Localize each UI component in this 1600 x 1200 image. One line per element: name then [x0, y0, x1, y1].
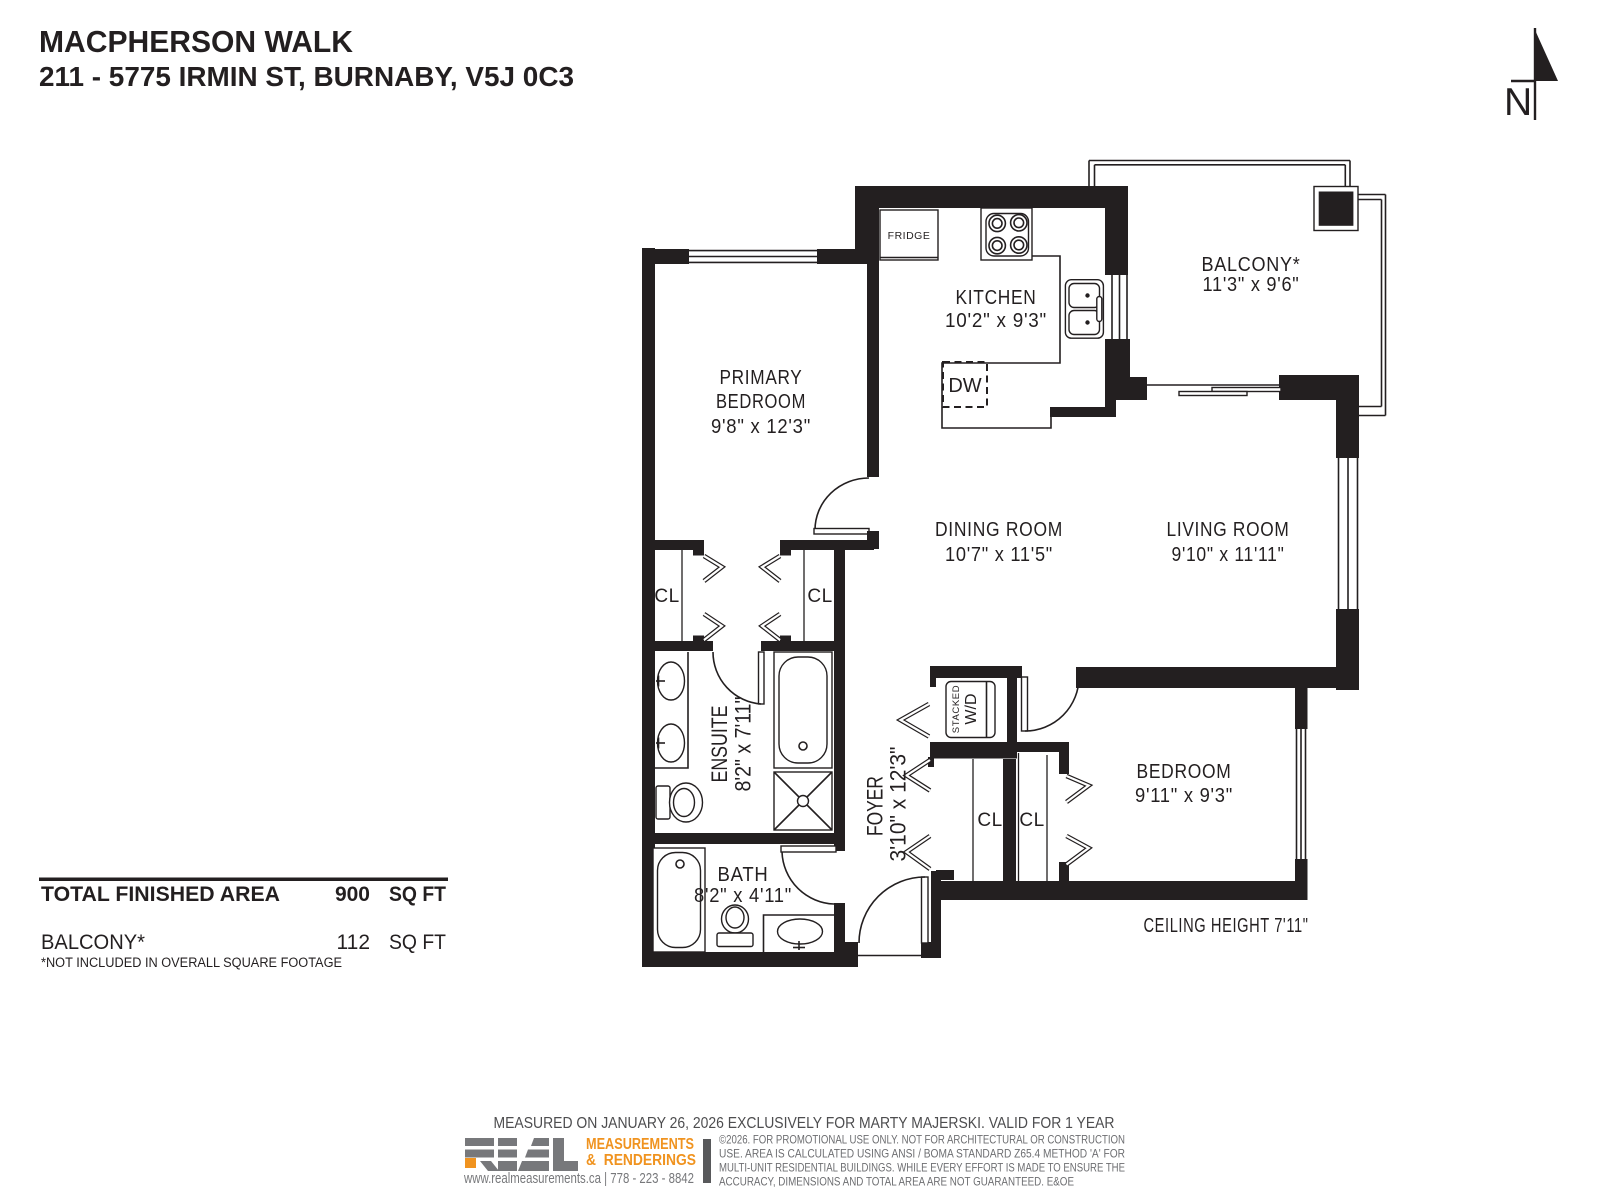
- svg-text:900: 900: [335, 883, 370, 906]
- svg-text:*NOT INCLUDED IN OVERALL SQUAR: *NOT INCLUDED IN OVERALL SQUARE FOOTAGE: [41, 955, 342, 970]
- svg-text:FOYER: FOYER: [863, 776, 888, 836]
- svg-text:ACCURACY, DIMENSIONS AND TOTAL: ACCURACY, DIMENSIONS AND TOTAL AREA ARE …: [719, 1175, 1074, 1189]
- svg-text:DW: DW: [948, 375, 981, 397]
- svg-text:MACPHERSON WALK: MACPHERSON WALK: [39, 24, 354, 59]
- svg-text:BALCONY*: BALCONY*: [41, 931, 145, 954]
- svg-text:USE. AREA IS CALCULATED USING: USE. AREA IS CALCULATED USING ANSI / BOM…: [719, 1147, 1125, 1161]
- svg-text:CL: CL: [1019, 810, 1044, 831]
- svg-text:8'2" x 4'11": 8'2" x 4'11": [694, 885, 792, 907]
- svg-text:& RENDERINGS: & RENDERINGS: [586, 1152, 696, 1169]
- svg-text:STACKED: STACKED: [951, 685, 962, 733]
- svg-text:DINING ROOM: DINING ROOM: [935, 519, 1063, 541]
- svg-text:CL: CL: [977, 810, 1002, 831]
- svg-text:MEASUREMENTS: MEASUREMENTS: [586, 1136, 694, 1153]
- svg-text:CL: CL: [654, 586, 679, 607]
- svg-text:9'10" x 11'11": 9'10" x 11'11": [1172, 544, 1285, 566]
- svg-text:112: 112: [337, 931, 370, 954]
- svg-text:BEDROOM: BEDROOM: [1137, 761, 1232, 783]
- svg-text:3'10" x 12'3": 3'10" x 12'3": [886, 747, 911, 862]
- svg-text:MULTI-UNIT RESIDENTIAL BUILDIN: MULTI-UNIT RESIDENTIAL BUILDINGS. WHILE …: [719, 1161, 1125, 1175]
- svg-text:PRIMARY: PRIMARY: [720, 367, 803, 389]
- svg-text:MEASURED ON JANUARY 26, 2026 E: MEASURED ON JANUARY 26, 2026 EXCLUSIVELY…: [494, 1115, 1115, 1132]
- svg-text:SQ FT: SQ FT: [389, 931, 446, 954]
- svg-text:©2026. FOR PROMOTIONAL USE ONL: ©2026. FOR PROMOTIONAL USE ONLY. NOT FOR…: [719, 1133, 1125, 1147]
- svg-text:8'2" x 7'11": 8'2" x 7'11": [731, 697, 756, 792]
- svg-text:CEILING HEIGHT 7'11": CEILING HEIGHT 7'11": [1144, 915, 1309, 937]
- svg-text:9'8" x 12'3": 9'8" x 12'3": [711, 416, 811, 438]
- svg-text:10'7" x 11'5": 10'7" x 11'5": [945, 544, 1053, 566]
- svg-text:BALCONY*: BALCONY*: [1202, 254, 1301, 276]
- svg-text:10'2" x 9'3": 10'2" x 9'3": [945, 310, 1047, 332]
- svg-text:W/D: W/D: [963, 693, 980, 724]
- svg-text:11'3" x 9'6": 11'3" x 9'6": [1203, 274, 1300, 296]
- svg-text:KITCHEN: KITCHEN: [956, 287, 1037, 309]
- svg-text:9'11" x 9'3": 9'11" x 9'3": [1135, 785, 1233, 807]
- svg-text:ENSUITE: ENSUITE: [707, 706, 732, 783]
- svg-text:CL: CL: [807, 586, 832, 607]
- svg-text:211 - 5775 IRMIN ST, BURNABY,: 211 - 5775 IRMIN ST, BURNABY, V5J 0C3: [39, 61, 574, 92]
- svg-text:BEDROOM: BEDROOM: [716, 391, 806, 413]
- svg-text:N: N: [1504, 81, 1532, 124]
- svg-text:www.realmeasurements.ca | 778: www.realmeasurements.ca | 778 - 223 - 88…: [463, 1171, 694, 1187]
- svg-text:BATH: BATH: [718, 864, 769, 886]
- svg-text:SQ FT: SQ FT: [389, 883, 446, 906]
- svg-text:LIVING ROOM: LIVING ROOM: [1167, 519, 1290, 541]
- svg-text:TOTAL FINISHED AREA: TOTAL FINISHED AREA: [41, 883, 280, 906]
- svg-text:FRIDGE: FRIDGE: [888, 230, 931, 242]
